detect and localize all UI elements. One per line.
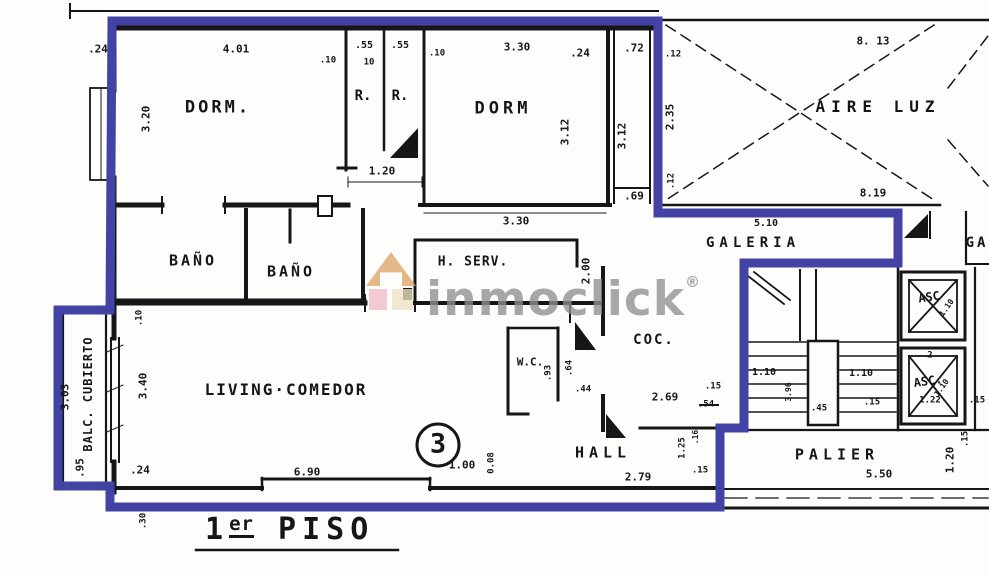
dim-label-3.03-26: 3.03	[60, 384, 71, 411]
room-label-closet-r1: R.	[355, 89, 372, 103]
dim-label-2.69-36: 2.69	[652, 392, 679, 403]
room-label-palier: PALIER	[795, 448, 879, 463]
dim-label-.10-6: .10	[429, 50, 445, 59]
labels-layer: DORM.R.R.DORMBAÑOBAÑOH. SERV.AIRE LUZGAL…	[0, 0, 989, 576]
room-label-bano-2: BAÑO	[267, 265, 315, 280]
dim-label-3.12-14: 3.12	[617, 123, 628, 150]
dim-label-3.30-7: 3.30	[504, 42, 531, 53]
dim-label-3.96-42: 3.96	[785, 382, 793, 401]
dim-label-.45-43: .45	[811, 405, 827, 414]
dim-label-.15-37: .15	[705, 383, 721, 392]
room-label-galeria: GALERIA	[706, 236, 800, 250]
dim-label-2-47: 2	[927, 352, 932, 361]
dim-label-.55-3: .55	[355, 41, 373, 51]
room-label-aire-luz: AIRE LUZ	[815, 99, 940, 115]
dim-label-1.10-44: 1.10	[849, 369, 873, 379]
floor-title: 1er PISO	[205, 512, 374, 547]
dim-label-1.10-41: 1.10	[752, 368, 776, 378]
dim-label-.10-23: .10	[136, 310, 145, 326]
dim-label-.24-8: .24	[570, 48, 590, 59]
dim-label-.15-50: .15	[969, 397, 985, 406]
dim-label-1.10-46: 1.10	[938, 298, 956, 318]
dim-label-1.00-30: 1.00	[449, 460, 476, 471]
room-label-balc-cubierto: BALC. CUBIERTO	[82, 336, 94, 451]
unit-number-badge: 3	[430, 428, 446, 459]
dim-label-.24-0: .24	[88, 44, 108, 55]
dim-label-.64-34: .64	[566, 360, 575, 376]
dim-label-1.20-17: 1.20	[369, 166, 396, 177]
room-label-living-comedor: LIVING·COMEDOR	[205, 382, 368, 398]
dim-label-1.25-39: 1.25	[679, 437, 688, 459]
room-label-dorm-1: DORM.	[185, 100, 251, 117]
dim-label-1.22-49: 1.22	[919, 397, 941, 406]
dim-label-.15-53: .15	[962, 431, 971, 447]
room-label-asc-1: ASC	[917, 290, 940, 305]
room-label-h-serv: H. SERV.	[438, 256, 509, 269]
dim-label-8. 13-11: 8. 13	[856, 36, 889, 47]
dim-label-0.08-29: 0.08	[488, 452, 497, 474]
dim-label-2.35-15: 2.35	[665, 104, 676, 131]
dim-label-3.12-13: 3.12	[560, 119, 571, 146]
dim-label-5.50-51: 5.50	[866, 469, 893, 480]
dim-label-6.90-28: 6.90	[294, 467, 321, 478]
dim-label-.16-40: .16	[692, 430, 700, 444]
room-label-wc: W.C.	[517, 357, 544, 368]
dim-label-.15-32: .15	[692, 467, 708, 476]
room-label-dorm-2: DORM	[475, 101, 532, 118]
room-label-galeria-adjacent: GA	[966, 236, 989, 250]
dim-label-.93-33: .93	[545, 365, 554, 381]
dim-label-.30-54: .30	[140, 513, 149, 529]
dim-label-10-4: 10	[364, 59, 375, 68]
dim-label-.44-35: .44	[575, 386, 591, 395]
room-label-hall: HALL	[575, 446, 631, 461]
room-label-cocina: COC.	[633, 333, 675, 347]
dim-label-2.79-31: 2.79	[625, 472, 652, 483]
dim-label-3.40-24: 3.40	[138, 373, 149, 400]
dim-label-4.01-1: 4.01	[223, 44, 250, 55]
floorplan: inmoclick® DORM.R.R.DORMBAÑOBAÑOH. SERV.…	[0, 0, 989, 576]
dim-label-2.00-22: 2.00	[581, 258, 592, 285]
dim-label-.69-18: .69	[624, 191, 644, 202]
dim-label-3.30-19: 3.30	[503, 216, 530, 227]
dim-label-8.19-20: 8.19	[860, 188, 887, 199]
dim-label-.10-2: .10	[320, 57, 336, 66]
dim-label-.54-38: .54	[698, 401, 714, 410]
room-label-bano-1: BAÑO	[169, 254, 217, 269]
dim-label-1.20-52: 1.20	[945, 447, 956, 474]
dim-label-.55-5: .55	[391, 41, 409, 51]
dim-label-.24-25: .24	[130, 465, 150, 476]
dim-label-.72-9: .72	[624, 43, 644, 54]
dim-label-3.20-12: 3.20	[141, 106, 152, 133]
dim-label-.15-45: .15	[864, 399, 880, 408]
dim-label-.12-16: .12	[668, 173, 677, 189]
dim-label-5.10-21: 5.10	[754, 219, 778, 229]
room-label-closet-r2: R.	[392, 89, 409, 103]
dim-label-.12-10: .12	[665, 51, 681, 60]
dim-label-.95-27: .95	[75, 458, 86, 478]
